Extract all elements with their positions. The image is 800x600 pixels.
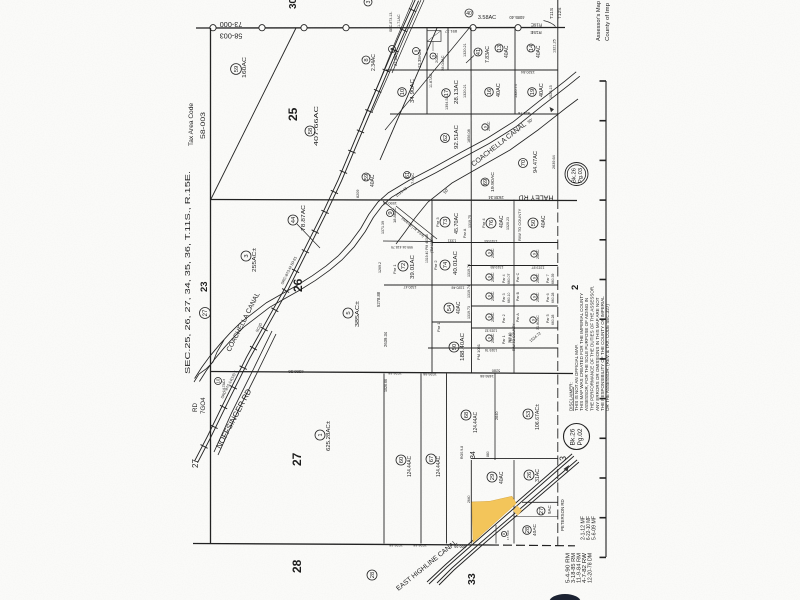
svg-text:59: 59 [234,66,240,72]
svg-text:11.87AC: 11.87AC [429,73,433,88]
svg-text:5278.88: 5278.88 [376,291,381,307]
svg-text:28: 28 [290,559,304,573]
svg-text:5280: 5280 [492,369,500,373]
svg-text:3: 3 [558,456,568,461]
svg-text:72: 72 [401,263,407,269]
svg-text:1331: 1331 [448,239,456,243]
svg-text:40AC: 40AC [532,523,538,536]
svg-text:10: 10 [216,378,221,383]
svg-text:407.66AC: 407.66AC [314,106,320,146]
svg-text:R16E: R16E [531,23,542,28]
svg-text:31.80AC: 31.80AC [536,315,540,330]
svg-text:(TM 13-84): (TM 13-84) [430,236,434,253]
svg-text:2638.34: 2638.34 [488,195,504,200]
svg-text:21.09AC: 21.09AC [393,50,398,66]
svg-text:3.58AC: 3.58AC [478,15,496,21]
svg-text:385AC±: 385AC± [355,301,361,327]
svg-text:Par A: Par A [516,313,520,322]
svg-text:1371.39: 1371.39 [381,221,385,234]
svg-text:13: 13 [497,45,503,51]
svg-text:R/W TO COUNTY: R/W TO COUNTY [517,208,522,241]
svg-text:76: 76 [489,220,495,226]
svg-text:1486.66: 1486.66 [480,374,494,378]
svg-text:ASSESSOR, FOR THE SOLE PURPOSE: ASSESSOR, FOR THE SOLE PURPOSE OF AIDING… [584,298,589,411]
svg-text:124.44AC: 124.44AC [473,412,479,433]
svg-text:40AC: 40AC [370,174,376,187]
svg-text:14.7AC±: 14.7AC± [222,379,226,392]
svg-text:78.87AC: 78.87AC [301,205,307,231]
svg-text:68: 68 [464,412,470,418]
svg-text:20AC: 20AC [491,291,495,301]
svg-text:Par 6: Par 6 [546,293,550,302]
svg-text:18.88AC: 18.88AC [392,207,397,223]
svg-text:OR THE ASSESSOR. (REV. & TAX.: OR THE ASSESSOR. (REV. & TAX. CODE SEC.3… [605,304,610,411]
svg-text:Par 1: Par 1 [392,264,397,274]
svg-text:Bk.26: Bk.26 [572,168,578,183]
svg-text:THE PERFORMANCE OF THE DUTIES: THE PERFORMANCE OF THE DUTIES OF THE ASS… [590,286,595,411]
svg-text:40AC: 40AC [496,83,502,97]
svg-text:566.66: 566.66 [454,545,466,549]
svg-text:124.44AC: 124.44AC [407,456,413,477]
svg-text:74: 74 [443,261,449,268]
svg-text:Par C: Par C [516,272,520,282]
svg-text:34.90AC: 34.90AC [410,79,416,103]
svg-text:44: 44 [291,216,297,223]
svg-text:HALEY RD: HALEY RD [519,193,554,200]
svg-text:ROS 9-8: ROS 9-8 [460,446,464,459]
svg-text:94.47AC: 94.47AC [533,151,539,173]
svg-text:1: 1 [318,433,324,436]
svg-text:50: 50 [531,220,537,226]
svg-text:4386.56: 4386.56 [288,369,304,374]
svg-text:67: 67 [429,456,435,462]
svg-text:999.04 418.79: 999.04 418.79 [391,245,413,249]
svg-text:3: 3 [366,0,372,3]
svg-text:39.01AC: 39.01AC [410,255,416,279]
svg-text:1319.87: 1319.87 [532,266,545,270]
svg-text:9AC: 9AC [547,504,552,514]
svg-text:28: 28 [370,572,376,578]
svg-text:851.78: 851.78 [518,111,530,115]
svg-text:26: 26 [291,278,305,292]
svg-text:Assessor's Map: Assessor's Map [596,1,602,41]
svg-text:SEC-873-13-: SEC-873-13- [389,11,393,32]
svg-text:1590.98: 1590.98 [383,201,397,205]
svg-text:2640: 2640 [467,495,471,503]
svg-text:62: 62 [443,135,449,141]
svg-text:16: 16 [487,89,493,95]
svg-text:625.28AC±: 625.28AC± [326,421,332,451]
svg-text:188.40AC: 188.40AC [460,333,466,361]
svg-text:40AC: 40AC [499,215,505,228]
svg-text:891.17: 891.17 [444,29,457,34]
svg-text:27: 27 [191,459,200,468]
svg-text:20AC: 20AC [536,273,540,283]
svg-text:50: 50 [452,344,458,350]
svg-text:RD: RD [192,403,199,412]
svg-text:2: 2 [570,285,581,290]
svg-text:58-003: 58-003 [200,112,207,139]
svg-text:1026.66: 1026.66 [384,379,388,392]
svg-text:20AC: 20AC [491,272,495,282]
svg-text:5: 5 [346,311,352,314]
svg-text:25: 25 [286,107,300,121]
svg-text:1319.85: 1319.85 [491,265,504,269]
svg-text:1319.76: 1319.76 [467,264,471,277]
svg-text:Pg.03: Pg.03 [578,168,584,183]
svg-text:PETERSON RD: PETERSON RD [560,499,565,531]
svg-text:2640: 2640 [495,412,499,420]
svg-text:660.28: 660.28 [551,293,555,303]
svg-text:40AC: 40AC [536,45,542,58]
svg-text:1319.75: 1319.75 [468,215,472,228]
svg-text:1319.73: 1319.73 [467,306,471,319]
svg-text:Par 2: Par 2 [502,314,506,323]
svg-text:1026.66: 1026.66 [389,543,403,547]
svg-text:92.51AC: 92.51AC [454,125,460,149]
svg-text:660.39: 660.39 [551,274,555,284]
svg-text:30: 30 [288,0,299,9]
svg-text:40: 40 [466,11,472,17]
svg-text:26: 26 [527,472,533,478]
svg-text:8: 8 [364,58,370,61]
svg-text:Par 7: Par 7 [546,274,550,283]
svg-text:29: 29 [490,474,496,480]
svg-text:40AC: 40AC [456,301,462,314]
svg-text:1320.21: 1320.21 [463,43,467,57]
svg-text:Par 1: Par 1 [436,322,441,332]
svg-text:19: 19 [530,89,536,95]
svg-text:Par 4: Par 4 [502,274,506,283]
svg-text:1856.08: 1856.08 [467,129,471,143]
svg-text:R15E: R15E [530,30,541,35]
svg-text:7.83AC: 7.83AC [485,46,491,63]
svg-text:20AC: 20AC [491,333,495,343]
svg-text:1319.32: 1319.32 [485,329,497,333]
svg-text:23: 23 [199,281,210,292]
svg-text:PM 1081: PM 1081 [476,343,481,360]
svg-text:3: 3 [244,254,250,257]
svg-text:27: 27 [290,452,304,466]
svg-text:2.34AC: 2.34AC [371,54,377,71]
svg-text:767.40: 767.40 [509,333,513,343]
svg-text:1320.84: 1320.84 [521,70,535,74]
svg-text:40AC: 40AC [541,215,547,228]
svg-text:1023.15: 1023.15 [549,85,553,99]
svg-text:160AC: 160AC [242,57,248,78]
svg-text:SEC.25, 26, 27, 34, 35, 36, T.: SEC.25, 26, 27, 34, 35, 36, T.11S., R.15… [183,171,192,374]
svg-text:2639.64: 2639.64 [552,155,556,169]
svg-text:660.07: 660.07 [507,274,511,284]
svg-text:8209: 8209 [356,190,360,198]
svg-text:33: 33 [466,573,478,585]
svg-text:28.04AC: 28.04AC [440,55,445,71]
svg-text:T11S: T11S [549,8,555,19]
svg-text:41: 41 [476,49,482,55]
svg-text:1320.23: 1320.23 [506,217,510,230]
svg-text:7.6AC: 7.6AC [410,173,415,184]
svg-text:DISCLAIMER:: DISCLAIMER: [569,382,574,411]
svg-text:70: 70 [521,160,527,166]
svg-text:7GO4: 7GO4 [200,397,207,414]
svg-text:17.5AC: 17.5AC [506,529,510,540]
svg-text:12-20-78 DM: 12-20-78 DM [588,553,594,583]
svg-text:34: 34 [470,451,477,459]
svg-text:1269.2: 1269.2 [378,262,382,273]
svg-text:Par B: Par B [516,291,520,301]
svg-text:53: 53 [526,411,532,417]
svg-text:27: 27 [203,309,209,316]
svg-text:20AC: 20AC [434,53,439,63]
svg-text:1026.66: 1026.66 [388,371,402,375]
svg-text:60: 60 [399,457,405,463]
svg-text:Par 5: Par 5 [546,314,550,323]
svg-text:Tax Area Code: Tax Area Code [188,103,195,146]
svg-text:1319.83: 1319.83 [485,239,498,243]
svg-text:Par 2: Par 2 [433,260,438,270]
svg-text:County of Imp: County of Imp [605,3,611,41]
svg-text:5-6-09 MF: 5-6-09 MF [592,516,598,540]
svg-text:1321.25: 1321.25 [553,39,557,53]
svg-text:58-003: 58-003 [220,32,243,41]
svg-text:19.90AC: 19.90AC [490,172,495,192]
svg-text:20AC: 20AC [536,249,540,259]
svg-text:880: 880 [486,451,490,457]
svg-text:28: 28 [525,527,531,533]
svg-text:Par A: Par A [463,228,467,238]
svg-text:1320.74: 1320.74 [514,84,518,98]
svg-text:14: 14 [529,44,535,51]
svg-text:10: 10 [400,89,406,95]
svg-text:1.71AC: 1.71AC [397,14,401,27]
svg-text:1319.76: 1319.76 [485,348,497,352]
svg-text:73: 73 [443,219,449,225]
svg-text:20AC: 20AC [491,312,495,322]
svg-text:40.01AC: 40.01AC [453,251,459,275]
svg-text:1394.53: 1394.53 [445,96,449,110]
svg-text:27: 27 [539,508,545,514]
svg-text:124.44AC: 124.44AC [436,456,442,477]
svg-text:31AC: 31AC [535,469,541,482]
svg-text:106.67AC±: 106.67AC± [535,404,541,430]
svg-text:Par 3: Par 3 [435,217,440,227]
svg-text:1026.66: 1026.66 [423,372,437,376]
svg-text:660.28: 660.28 [551,315,555,325]
svg-text:1319.40 PM 40344: 1319.40 PM 40344 [425,234,429,263]
svg-text:20AC: 20AC [491,248,495,258]
svg-text:13.39AC±: 13.39AC± [417,48,422,68]
svg-text:Pg.02: Pg.02 [577,428,584,446]
svg-text:1026.66: 1026.66 [413,543,427,547]
svg-text:1320.48: 1320.48 [452,286,465,290]
svg-text:4085.40: 4085.40 [509,15,525,20]
svg-text:1320.47: 1320.47 [404,285,417,289]
svg-text:Par 4: Par 4 [481,218,486,228]
svg-text:Par 3: Par 3 [502,293,506,302]
svg-text:40AC: 40AC [499,471,505,484]
svg-text:1320.21: 1320.21 [463,84,467,98]
svg-text:1319.74: 1319.74 [467,285,471,298]
svg-text:20AC: 20AC [487,121,491,131]
svg-text:69: 69 [483,179,489,185]
svg-text:17: 17 [444,90,450,96]
svg-text:45.70AC: 45.70AC [454,213,460,234]
svg-text:20AC: 20AC [536,292,540,302]
svg-text:2639.34: 2639.34 [383,331,388,347]
svg-text:40AC: 40AC [504,45,510,58]
svg-text:28.13AC: 28.13AC [454,80,460,104]
svg-text:255AC±: 255AC± [252,248,258,272]
svg-text:660.10: 660.10 [507,293,511,303]
svg-text:54: 54 [447,304,453,311]
svg-text:40AC: 40AC [539,83,545,97]
svg-text:Par 1: Par 1 [502,335,506,344]
svg-text:Bk.26: Bk.26 [570,428,577,446]
